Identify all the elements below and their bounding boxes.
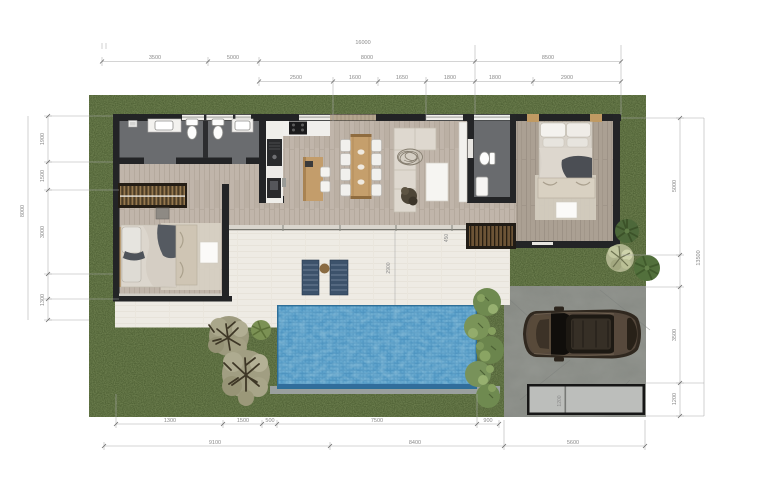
svg-text:2900: 2900 (561, 75, 573, 81)
svg-text:1300: 1300 (164, 418, 176, 424)
svg-text:1900: 1900 (40, 133, 46, 145)
svg-text:2900: 2900 (386, 262, 392, 273)
svg-text:500: 500 (265, 418, 274, 424)
svg-text:1500: 1500 (40, 170, 46, 182)
svg-text:16000: 16000 (355, 40, 370, 46)
svg-text:900: 900 (483, 418, 492, 424)
svg-text:3500: 3500 (672, 329, 678, 341)
svg-text:1650: 1650 (396, 75, 408, 81)
svg-text:5000: 5000 (672, 180, 678, 192)
svg-text:1300: 1300 (40, 294, 46, 306)
svg-text:8000: 8000 (20, 205, 26, 217)
svg-text:8400: 8400 (409, 440, 421, 446)
svg-text:1800: 1800 (489, 75, 501, 81)
svg-text:7500: 7500 (371, 418, 383, 424)
svg-text:2500: 2500 (290, 75, 302, 81)
svg-text:3000: 3000 (40, 226, 46, 238)
svg-text:5000: 5000 (227, 55, 239, 61)
svg-text:13500: 13500 (696, 250, 702, 265)
svg-text:5600: 5600 (567, 440, 579, 446)
svg-text:3500: 3500 (149, 55, 161, 61)
svg-text:1200: 1200 (672, 393, 678, 405)
svg-text:8000: 8000 (361, 55, 373, 61)
svg-text:1600: 1600 (349, 75, 361, 81)
svg-text:9100: 9100 (209, 440, 221, 446)
svg-text:8500: 8500 (542, 55, 554, 61)
svg-text:450: 450 (444, 234, 450, 243)
svg-text:1500: 1500 (237, 418, 249, 424)
svg-text:1800: 1800 (444, 75, 456, 81)
svg-text:1200: 1200 (557, 395, 563, 406)
